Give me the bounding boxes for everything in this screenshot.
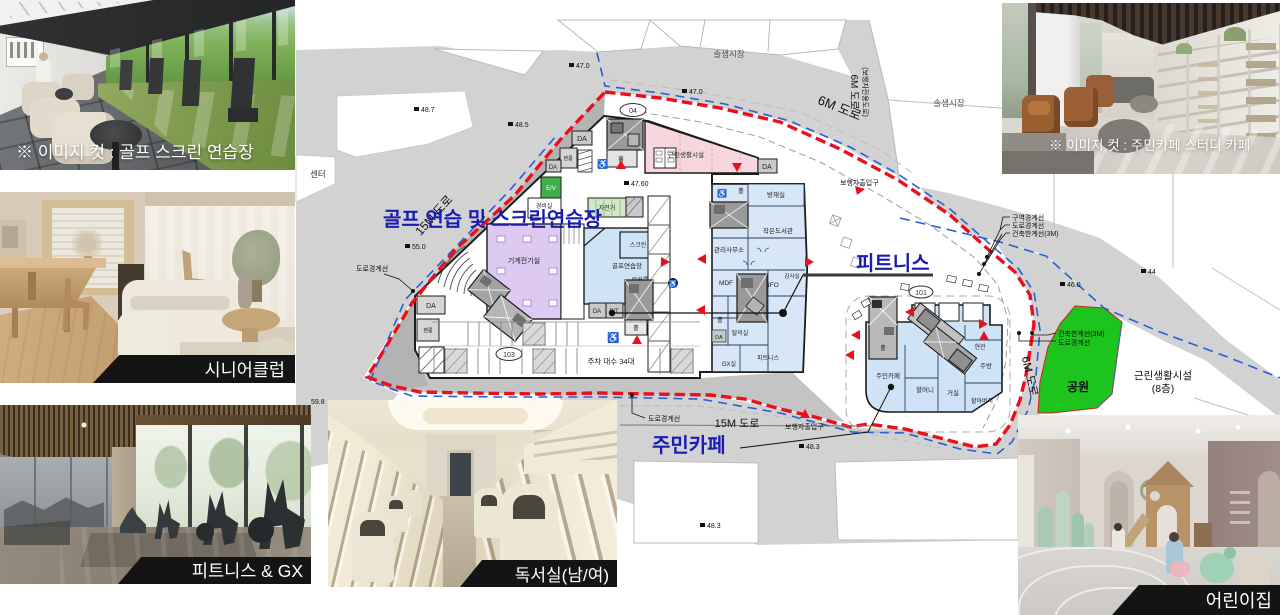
svg-text:건축한계선(3M): 건축한계선(3M) <box>1058 329 1105 338</box>
svg-text:홀: 홀 <box>717 316 723 324</box>
svg-text:48.7: 48.7 <box>421 107 435 114</box>
svg-text:팬룸: 팬룸 <box>563 155 573 162</box>
svg-text:DA: DA <box>715 335 723 341</box>
svg-text:공원: 공원 <box>1067 380 1089 394</box>
svg-text:6M 도로: 6M 도로 <box>848 74 859 109</box>
svg-text:보행자출입구: 보행자출입구 <box>785 422 824 431</box>
svg-text:103: 103 <box>503 352 515 359</box>
svg-text:DA: DA <box>593 309 601 315</box>
svg-text:47.0: 47.0 <box>689 89 703 96</box>
svg-text:도로경계선: 도로경계선 <box>1012 221 1044 230</box>
svg-text:탈의실: 탈의실 <box>732 329 749 337</box>
svg-text:할아버지: 할아버지 <box>971 397 993 405</box>
svg-text:주민카페: 주민카페 <box>876 371 900 380</box>
svg-text:GX실: GX실 <box>722 360 736 368</box>
svg-text:홀: 홀 <box>738 187 744 195</box>
svg-text:스크린: 스크린 <box>630 242 647 249</box>
svg-text:59.8: 59.8 <box>311 399 325 406</box>
svg-text:15M 도로: 15M 도로 <box>715 418 760 430</box>
svg-text:♿: ♿ <box>607 331 619 344</box>
svg-text:(8층): (8층) <box>1152 383 1175 395</box>
svg-text:건축한계선(3M): 건축한계선(3M) <box>1012 229 1059 238</box>
svg-text:솔샘시장: 솔샘시장 <box>713 49 744 59</box>
svg-text:작은도서관: 작은도서관 <box>763 226 793 235</box>
svg-text:홀: 홀 <box>880 344 886 352</box>
svg-text:근린생활시설: 근린생활시설 <box>1134 369 1192 382</box>
svg-text:관리사무소: 관리사무소 <box>714 245 744 254</box>
svg-text:골프 연습 및 스크린연습장: 골프 연습 및 스크린연습장 <box>383 208 603 231</box>
svg-text:근린생활시설: 근린생활시설 <box>668 150 704 159</box>
svg-text:거실: 거실 <box>947 388 959 397</box>
svg-text:101: 101 <box>915 290 927 297</box>
svg-text:감사실: 감사실 <box>784 272 799 280</box>
svg-text:홀: 홀 <box>633 324 639 332</box>
svg-text:47.60: 47.60 <box>631 181 649 188</box>
svg-text:♿: ♿ <box>597 158 608 169</box>
svg-text:DA: DA <box>762 164 772 171</box>
svg-text:E/V: E/V <box>546 186 556 192</box>
svg-text:솔샘시장: 솔샘시장 <box>933 98 964 108</box>
svg-text:DA: DA <box>426 303 436 310</box>
svg-text:48.3: 48.3 <box>707 523 721 530</box>
svg-text:할머니: 할머니 <box>916 385 934 394</box>
svg-text:(보행자전용도로): (보행자전용도로) <box>861 67 870 117</box>
svg-text:DA: DA <box>577 136 587 143</box>
svg-text:44: 44 <box>1148 269 1156 276</box>
svg-text:도로경계선: 도로경계선 <box>648 414 680 423</box>
svg-text:주방: 주방 <box>980 361 992 370</box>
svg-text:04: 04 <box>629 108 637 115</box>
svg-text:팬룸: 팬룸 <box>423 327 433 334</box>
svg-text:48.5: 48.5 <box>515 122 529 129</box>
svg-text:도로경계선: 도로경계선 <box>1058 338 1090 347</box>
svg-text:DA: DA <box>549 165 557 171</box>
svg-text:♿: ♿ <box>669 279 678 288</box>
svg-text:주민카페: 주민카페 <box>652 434 726 457</box>
svg-text:방재실: 방재실 <box>767 190 785 199</box>
svg-text:♿: ♿ <box>717 188 727 198</box>
svg-text:센터: 센터 <box>310 169 326 179</box>
svg-text:48.3: 48.3 <box>806 444 820 451</box>
svg-text:현관: 현관 <box>974 343 986 351</box>
svg-text:골프연습장: 골프연습장 <box>612 261 642 270</box>
svg-text:피트니스: 피트니스 <box>856 252 930 275</box>
svg-text:도로경계선: 도로경계선 <box>356 264 388 273</box>
svg-text:피트니스: 피트니스 <box>757 354 780 362</box>
svg-text:주차 대수 34대: 주차 대수 34대 <box>587 357 634 366</box>
svg-text:55.0: 55.0 <box>412 244 426 251</box>
svg-text:46.0: 46.0 <box>1067 282 1081 289</box>
svg-text:보행자출입구: 보행자출입구 <box>840 178 879 187</box>
svg-text:MDF: MDF <box>719 280 733 287</box>
svg-text:구역경계선: 구역경계선 <box>1012 213 1044 222</box>
svg-text:47.0: 47.0 <box>576 63 590 70</box>
svg-text:기계전기실: 기계전기실 <box>508 256 540 265</box>
